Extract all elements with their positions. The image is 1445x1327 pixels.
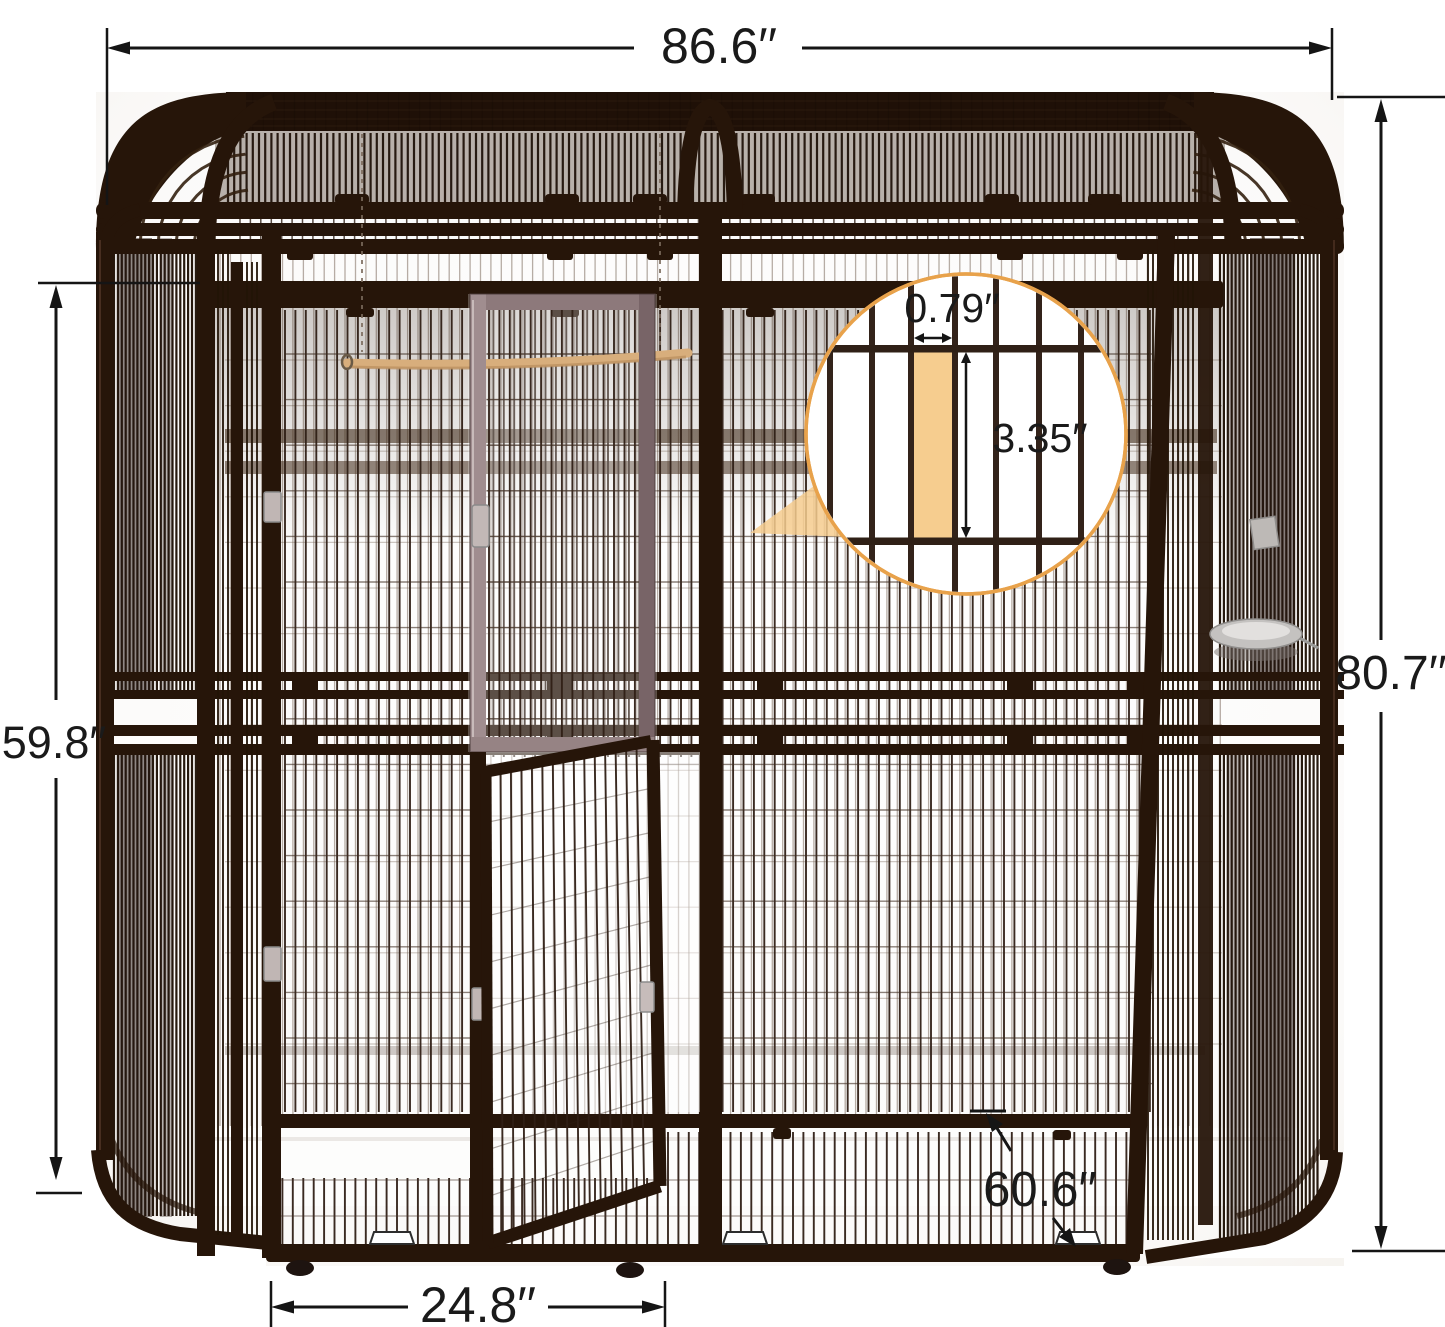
svg-text:3.35′′: 3.35′′ xyxy=(992,415,1087,461)
svg-text:60.6′′: 60.6′′ xyxy=(983,1163,1097,1217)
svg-text:0.79′′: 0.79′′ xyxy=(904,285,999,331)
svg-text:59.8′′: 59.8′′ xyxy=(2,717,106,768)
svg-text:80.7′′: 80.7′′ xyxy=(1335,647,1445,700)
svg-text:86.6′′: 86.6′′ xyxy=(661,18,777,74)
svg-text:24.8′′: 24.8′′ xyxy=(420,1277,536,1327)
